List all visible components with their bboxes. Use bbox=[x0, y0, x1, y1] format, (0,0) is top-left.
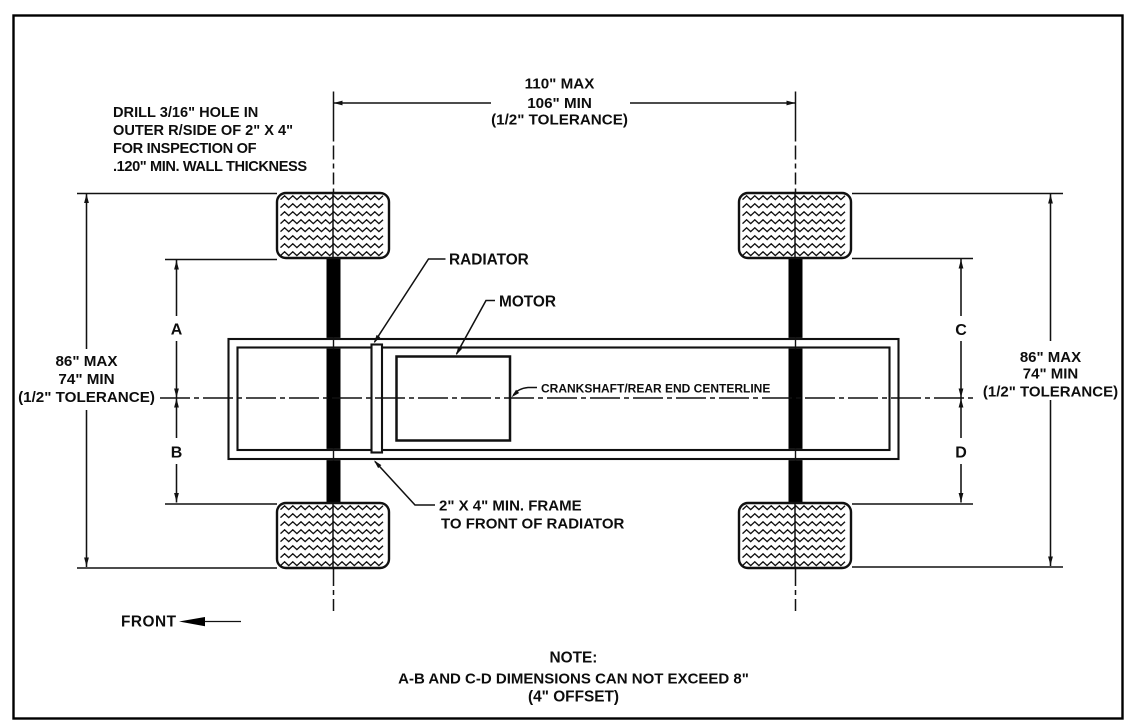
svg-text:110" MAX: 110" MAX bbox=[525, 76, 595, 93]
svg-text:B: B bbox=[171, 445, 183, 462]
svg-text:FRONT: FRONT bbox=[121, 614, 177, 631]
svg-text:CRANKSHAFT/REAR END CENTERLINE: CRANKSHAFT/REAR END CENTERLINE bbox=[541, 382, 770, 396]
svg-text:74" MIN: 74" MIN bbox=[1023, 366, 1078, 383]
svg-text:RADIATOR: RADIATOR bbox=[449, 252, 529, 269]
svg-text:2" X 4" MIN. FRAME: 2" X 4" MIN. FRAME bbox=[439, 498, 582, 515]
svg-text:(1/2" TOLERANCE): (1/2" TOLERANCE) bbox=[491, 112, 628, 129]
svg-text:106" MIN: 106" MIN bbox=[527, 95, 592, 112]
svg-text:C: C bbox=[955, 322, 967, 339]
svg-text:.120" MIN. WALL THICKNESS: .120" MIN. WALL THICKNESS bbox=[113, 159, 307, 175]
svg-text:OUTER R/SIDE OF 2" X 4": OUTER R/SIDE OF 2" X 4" bbox=[113, 123, 293, 139]
svg-text:86" MAX: 86" MAX bbox=[55, 353, 117, 370]
svg-text:MOTOR: MOTOR bbox=[499, 294, 556, 311]
svg-text:D: D bbox=[955, 445, 967, 462]
svg-text:(4" OFFSET): (4" OFFSET) bbox=[528, 689, 619, 706]
svg-text:74" MIN: 74" MIN bbox=[58, 371, 114, 388]
svg-text:(1/2" TOLERANCE): (1/2" TOLERANCE) bbox=[983, 384, 1118, 401]
svg-text:NOTE:: NOTE: bbox=[550, 650, 598, 667]
svg-text:(1/2" TOLERANCE): (1/2" TOLERANCE) bbox=[18, 389, 155, 406]
svg-text:A-B AND C-D DIMENSIONS CAN NOT: A-B AND C-D DIMENSIONS CAN NOT EXCEED 8" bbox=[398, 671, 749, 688]
svg-text:86" MAX: 86" MAX bbox=[1020, 349, 1081, 366]
svg-text:FOR INSPECTION OF: FOR INSPECTION OF bbox=[113, 141, 257, 157]
svg-text:A: A bbox=[171, 322, 183, 339]
svg-text:TO FRONT OF RADIATOR: TO FRONT OF RADIATOR bbox=[441, 516, 624, 533]
svg-text:DRILL 3/16" HOLE IN: DRILL 3/16" HOLE IN bbox=[113, 105, 258, 121]
